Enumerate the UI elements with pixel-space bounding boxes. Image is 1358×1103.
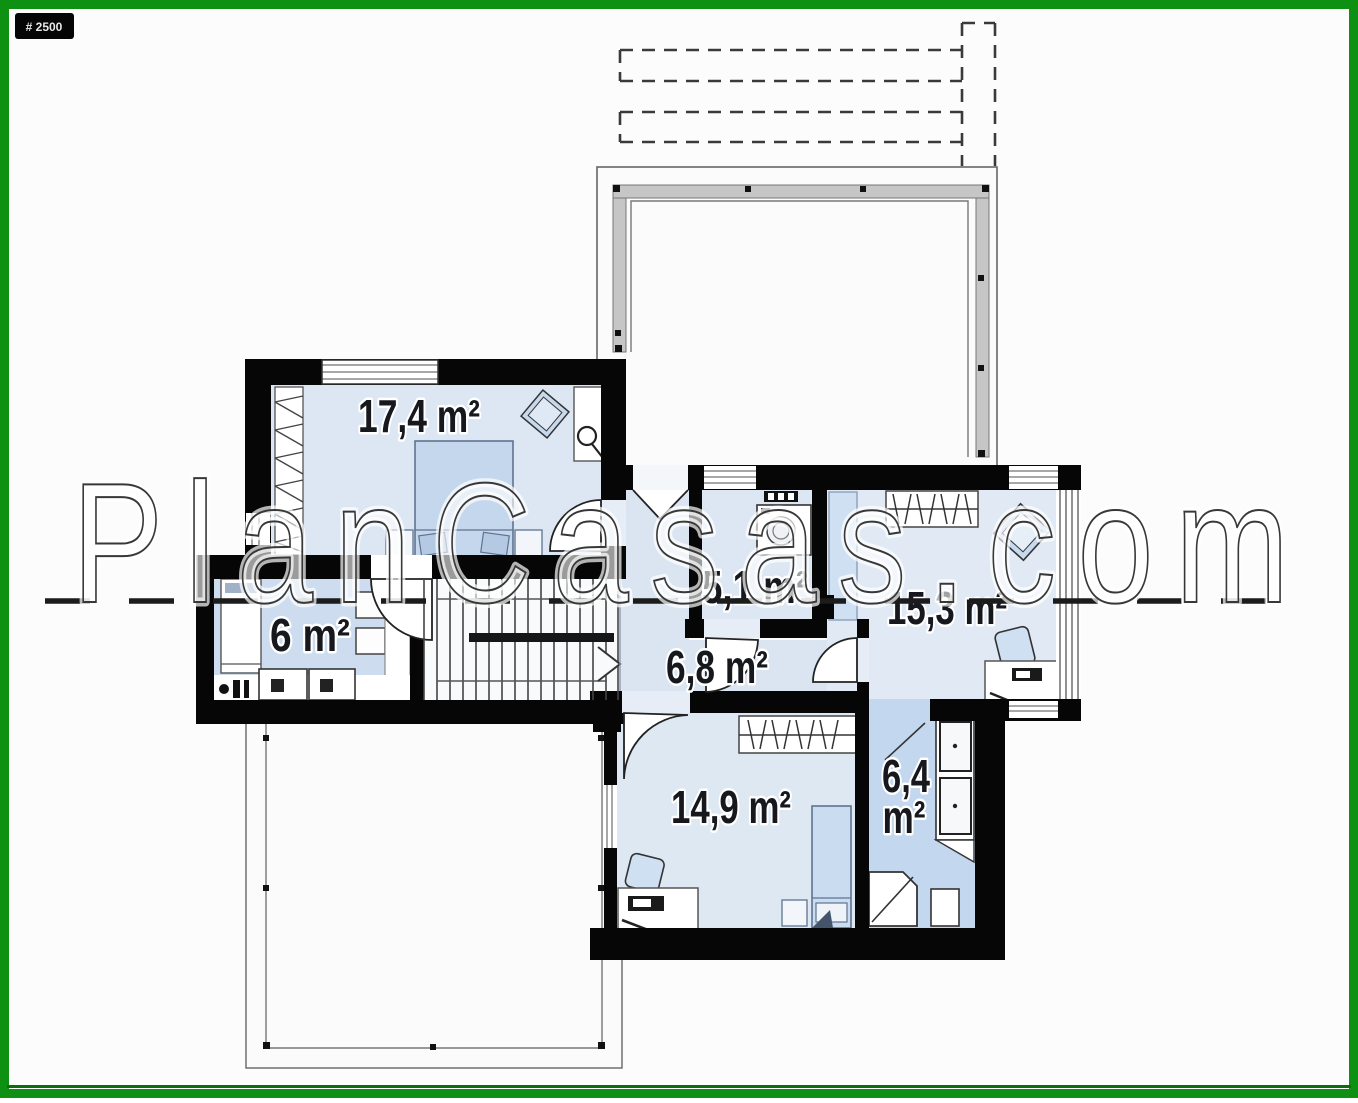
svg-text:# 2500: # 2500 [26,20,63,34]
svg-text:PlanCasas.com: PlanCasas.com [72,447,1311,638]
svg-text:17,4 m²: 17,4 m² [358,390,480,442]
svg-text:6,8 m²: 6,8 m² [666,641,768,693]
svg-text:m²: m² [883,791,926,843]
svg-text:14,9 m²: 14,9 m² [671,781,791,833]
